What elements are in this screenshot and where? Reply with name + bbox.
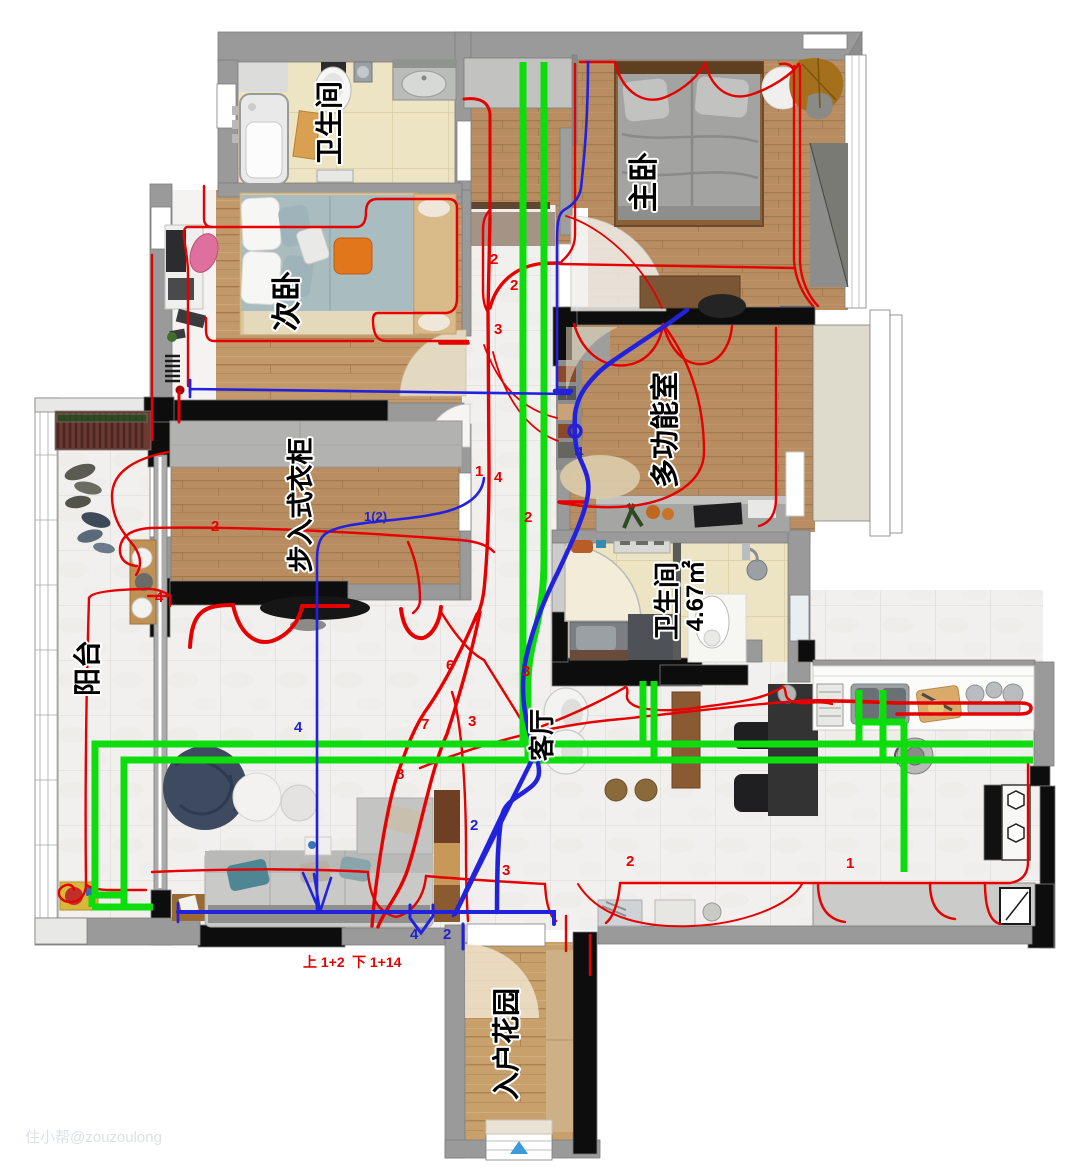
svg-text:2: 2 (524, 509, 532, 526)
svg-text:下 1+14: 下 1+14 (352, 954, 402, 970)
svg-text:4: 4 (494, 469, 503, 486)
svg-text:阳台: 阳台 (71, 640, 103, 696)
svg-text:上 1+2: 上 1+2 (303, 954, 345, 970)
svg-text:8: 8 (396, 766, 404, 783)
svg-text:客厅: 客厅 (527, 709, 557, 761)
svg-text:2: 2 (626, 853, 634, 870)
svg-text:4: 4 (410, 926, 419, 943)
svg-text:4: 4 (155, 589, 164, 606)
svg-text:4: 4 (575, 444, 584, 461)
svg-text:1(2): 1(2) (364, 509, 387, 524)
svg-text:入户花园: 入户花园 (490, 988, 522, 1100)
svg-text:3: 3 (494, 321, 502, 338)
svg-text:2: 2 (470, 817, 478, 834)
svg-text:4.67㎡: 4.67㎡ (681, 561, 709, 632)
svg-text:6: 6 (446, 657, 454, 674)
svg-text:多功能室: 多功能室 (648, 372, 682, 488)
svg-text:3: 3 (468, 713, 476, 730)
svg-text:7: 7 (421, 716, 429, 733)
svg-text:2: 2 (443, 926, 451, 943)
svg-text:2: 2 (211, 518, 219, 535)
svg-text:4: 4 (294, 719, 303, 736)
svg-text:2: 2 (510, 277, 518, 294)
svg-text:卫生间: 卫生间 (314, 81, 345, 165)
svg-text:2: 2 (490, 251, 498, 268)
svg-text:住小帮@zouzoulong: 住小帮@zouzoulong (25, 1129, 162, 1146)
svg-text:1: 1 (846, 855, 854, 872)
svg-text:主卧: 主卧 (628, 152, 661, 212)
svg-text:卫生间: 卫生间 (652, 562, 682, 640)
svg-text:3: 3 (502, 862, 510, 879)
svg-text:3: 3 (522, 663, 530, 680)
svg-text:次卧: 次卧 (271, 271, 304, 331)
svg-text:1: 1 (475, 463, 483, 480)
svg-text:步入式衣柜: 步入式衣柜 (285, 438, 316, 573)
